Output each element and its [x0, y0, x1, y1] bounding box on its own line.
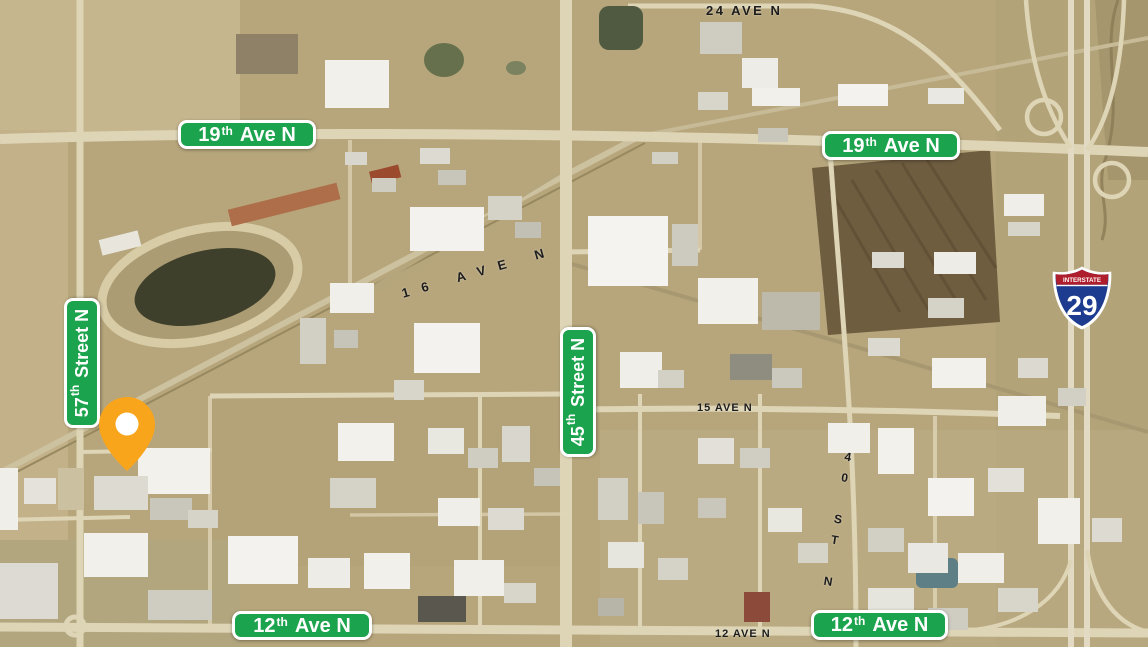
aerial-map: 24 AVE N 16 AVE N 15 AVE N 12 AVE N 40 S…	[0, 0, 1148, 647]
location-pin[interactable]	[99, 397, 155, 471]
street-sign-57th-street-n: 57thStreet N	[64, 298, 100, 428]
street-sign-19th-ave-n-west: 19thAve N	[178, 120, 316, 149]
interstate-29-shield: INTERSTATE 29	[1052, 266, 1112, 330]
imagery-label-24-ave-n: 24 AVE N	[706, 3, 782, 18]
street-sign-19th-ave-n-east: 19thAve N	[822, 131, 960, 160]
interstate-shield-top-label: INTERSTATE	[1063, 277, 1101, 284]
street-sign-12th-ave-n-west: 12thAve N	[232, 611, 372, 640]
street-sign-45th-street-n: 45thStreet N	[560, 327, 596, 457]
street-sign-12th-ave-n-east: 12thAve N	[811, 610, 948, 640]
satellite-imagery	[0, 0, 1148, 647]
imagery-label-12-ave-n: 12 AVE N	[715, 628, 771, 640]
imagery-label-15-ave-n: 15 AVE N	[697, 402, 753, 414]
interstate-shield-route-number: 29	[1066, 290, 1097, 321]
